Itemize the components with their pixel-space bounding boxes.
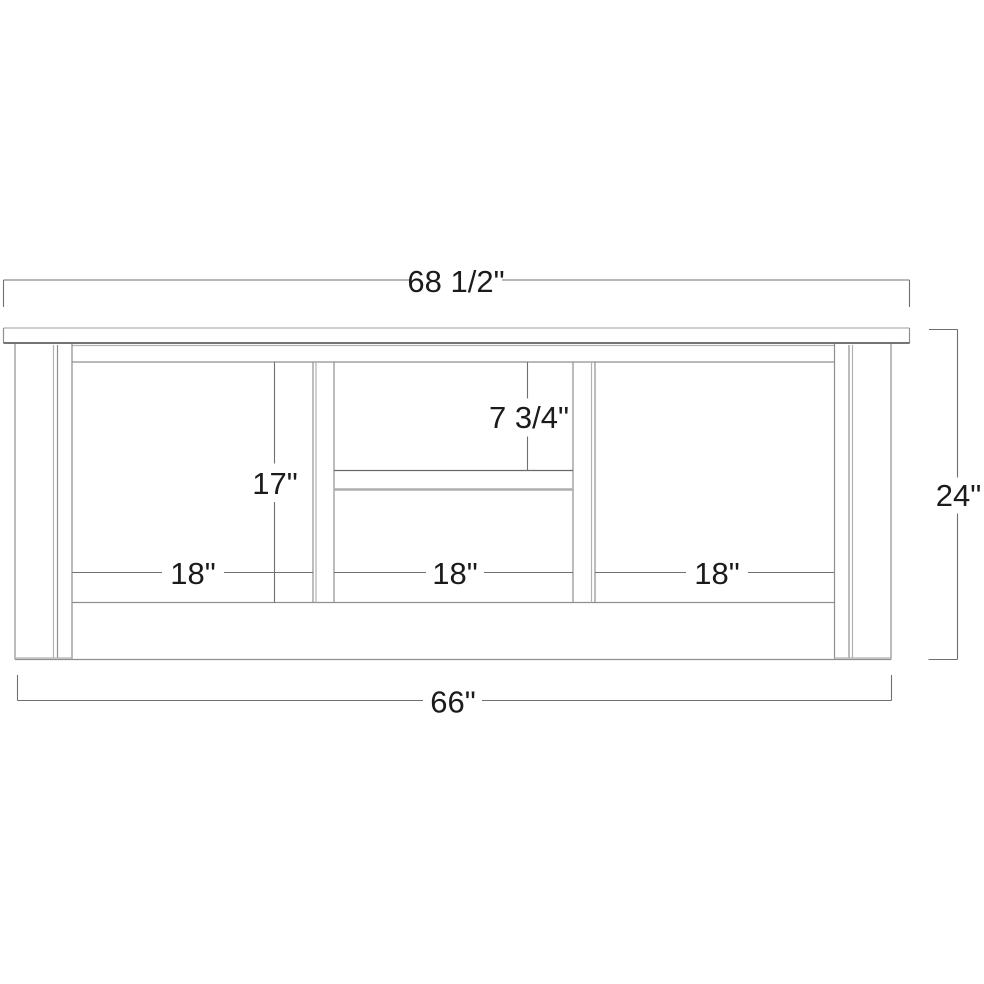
- middle-shelf: [334, 471, 573, 490]
- center-opening-label: 18": [432, 556, 478, 591]
- opening-height-label: 17": [252, 466, 298, 501]
- face-frame: [15, 346, 891, 660]
- dimension-left-opening: 18": [73, 556, 314, 591]
- right-leg: [835, 344, 892, 660]
- shelf-to-top-label: 7 3/4": [489, 400, 569, 435]
- left-leg: [15, 344, 72, 660]
- dimension-overall-height: 24": [929, 330, 982, 660]
- right-divider-stile: [573, 362, 595, 603]
- base-width-label: 66": [430, 685, 476, 720]
- left-divider-stile: [313, 362, 334, 603]
- cabinet-top-board: [4, 328, 910, 344]
- dimension-center-opening: 18": [334, 556, 573, 591]
- right-opening-label: 18": [694, 556, 740, 591]
- dimension-shelf-to-top: 7 3/4": [489, 362, 569, 471]
- dimension-right-opening: 18": [595, 556, 834, 591]
- overall-height-label: 24": [936, 478, 982, 513]
- dimension-base-width: 66": [18, 675, 892, 720]
- dimension-top-width: 68 1/2": [4, 264, 910, 307]
- drawing-canvas: 68 1/2" 24" 66" 17" 7 3/4" 18" 18": [0, 0, 984, 984]
- dimension-opening-height: 17": [252, 362, 298, 603]
- dimension-drawing: 68 1/2" 24" 66" 17" 7 3/4" 18" 18": [0, 0, 984, 984]
- top-width-label: 68 1/2": [407, 264, 504, 299]
- left-opening-label: 18": [170, 556, 216, 591]
